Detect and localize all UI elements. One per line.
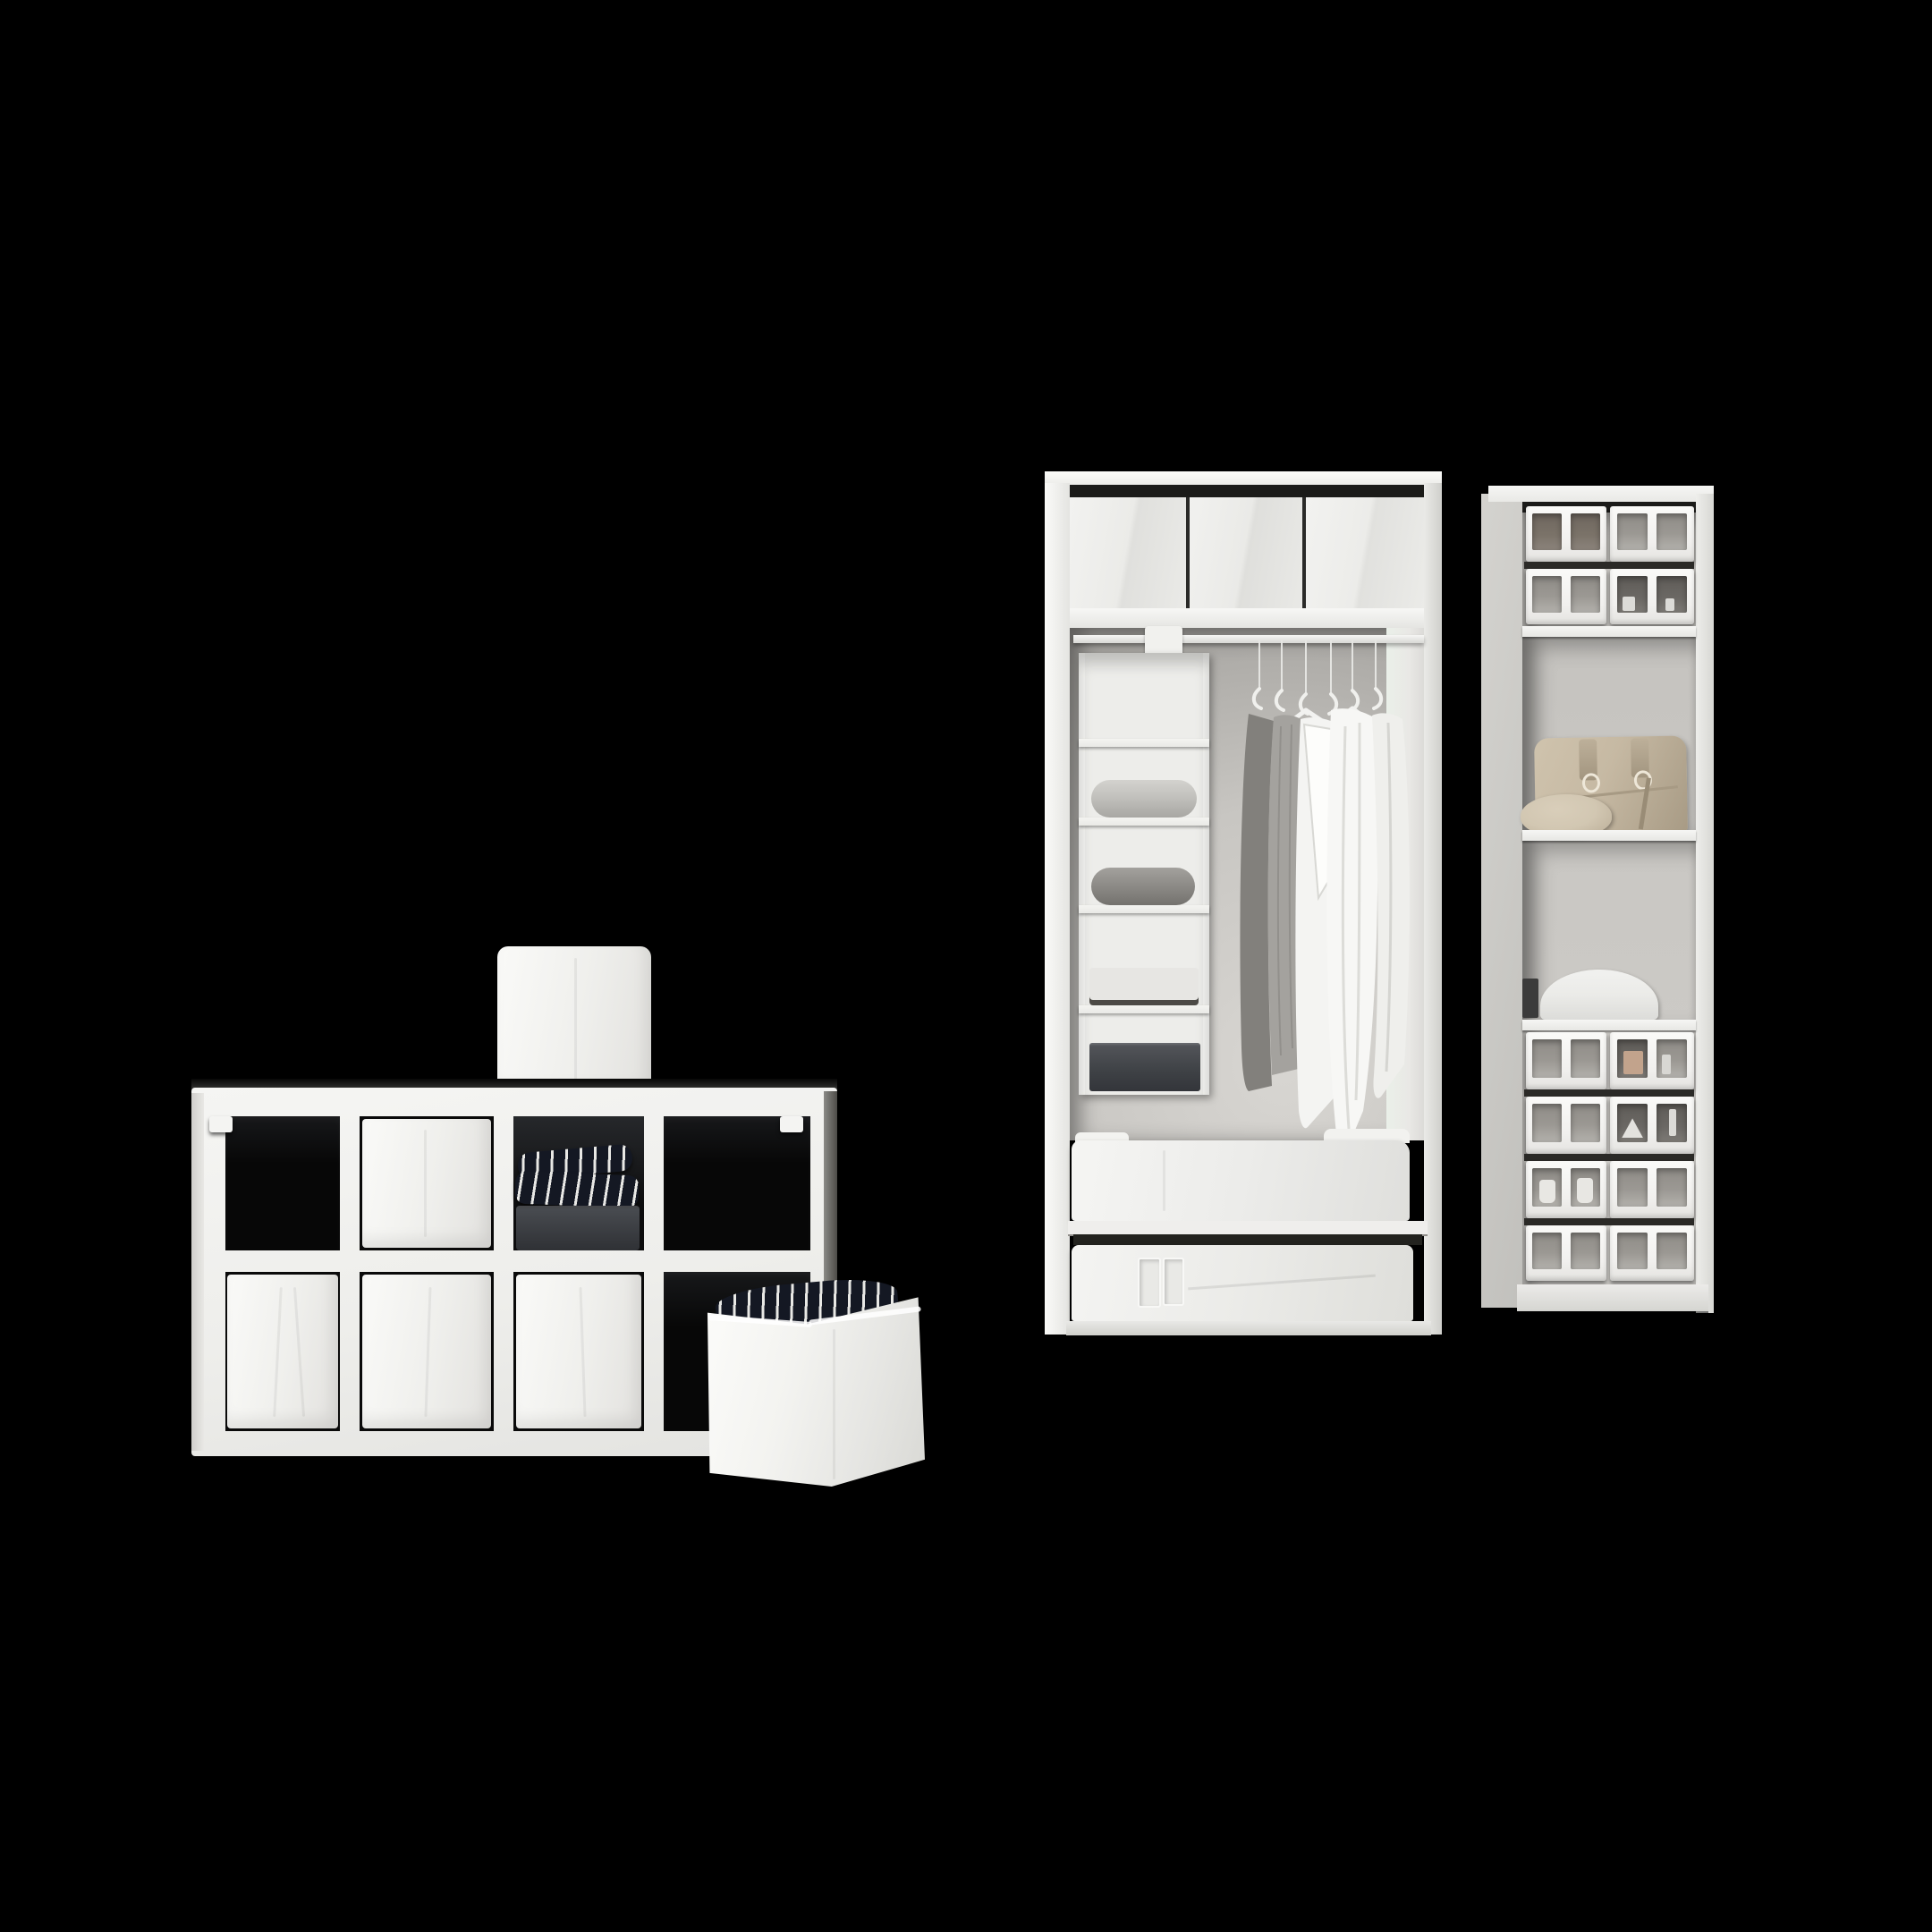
dark-folded-stack [516,1206,640,1250]
shelf-divider [1522,1020,1696,1030]
shoe-box-window [1657,1233,1688,1269]
stored-item-white [1623,597,1635,611]
folded-white-clothes [1089,968,1199,1005]
organizer-shelf [1079,1005,1209,1013]
shoe-box-window [1617,513,1648,550]
rolled-clothes-gray [1091,868,1195,905]
shoe-box-window [1571,513,1600,550]
shoe-box-window [1657,513,1688,550]
hanger-hooks [1254,689,1381,714]
shoe-box-window [1532,1104,1562,1141]
shoe-box [1526,1097,1606,1154]
fabric-drawer-box [362,1275,491,1428]
shoe-box [1526,506,1606,562]
stored-item-tan [1623,1051,1643,1074]
shoe-box-window [1532,513,1562,550]
shoe-box-window [1657,1104,1688,1141]
stored-item-white [1662,1055,1671,1074]
fabric-crease [424,1287,431,1417]
shelf-clip [780,1116,803,1132]
dark-folded-item [1522,979,1538,1018]
shoe-box [1526,1032,1606,1089]
shoe-box-window [1571,576,1600,613]
storage-case-upper [1072,1140,1410,1221]
wardrobe-top-band [1045,471,1442,486]
folded-dark-clothes [1089,1043,1200,1091]
overhead-cabinet [1070,497,1424,608]
shoe-box [1526,1161,1606,1218]
scene-background [0,0,1932,1932]
cube-cell [360,1116,494,1250]
case-shelf-gap [1073,1234,1422,1245]
shoe-box [1610,1097,1694,1154]
row-gap [1524,562,1694,569]
floor-storage-basket [698,1277,930,1492]
case-handle-loop [1138,1258,1161,1308]
shoe-box-window [1617,1168,1648,1206]
hanging-clothes [1215,628,1429,1165]
fabric-drawer-box [227,1275,338,1428]
shoe-box [1526,569,1606,624]
shoe-box-window [1657,1039,1688,1077]
shelf-left-side-face [191,1093,204,1451]
cabinet-door [1306,497,1424,608]
fabric-crease [1163,1150,1165,1211]
cabinet-door [1190,497,1302,608]
shoe-box [1610,1161,1694,1218]
cabinet-left-side-panel [1481,494,1524,1308]
cabinet-door [1070,497,1186,608]
shoe-box-window [1532,576,1562,613]
stored-cup-white [1577,1178,1593,1203]
fabric-crease [833,1329,835,1479]
organizer-shelf [1079,905,1209,913]
cabinet-base [1517,1284,1708,1311]
shelf-divider [1522,626,1696,637]
fabric-seam [1188,1275,1376,1291]
hanger-wires [1259,640,1376,696]
organizer-shelf [1079,739,1209,747]
shoe-box-window [1532,1168,1562,1206]
wardrobe-left-side [1045,483,1070,1335]
hanging-organizer [1079,653,1209,1095]
row-gap [1524,1154,1694,1161]
fabric-drawer-box [516,1275,641,1428]
shoe-box [1526,1225,1606,1281]
fabric-crease [574,958,577,1082]
cabinet-right-frame [1696,494,1714,1313]
row-gap [1524,1089,1694,1097]
shoe-box [1610,569,1694,624]
top-fabric-box [497,946,651,1095]
shoe-box-window [1571,1168,1600,1206]
stored-item-white [1665,598,1674,611]
shelf-divider [1522,830,1696,841]
cube-cell [513,1272,644,1431]
stored-cup-white [1539,1180,1555,1203]
row-gap [1524,1218,1694,1225]
shoe-box-window [1532,1039,1562,1077]
shoe-box [1610,1225,1694,1281]
wardrobe-base [1066,1321,1431,1335]
handbag-ring [1582,773,1600,792]
shoe-box-window [1657,1168,1688,1206]
fabric-crease [273,1287,283,1416]
shoe-box-window [1571,1039,1600,1077]
fabric-drawer-box [362,1119,491,1248]
shoe-box-window [1657,576,1688,613]
cube-cell-open [225,1116,340,1250]
cube-cell-open [664,1116,810,1250]
storage-case-lower [1072,1245,1413,1321]
fabric-crease [579,1287,586,1417]
shelf-clip [209,1116,233,1132]
shoe-box [1610,1032,1694,1089]
stored-item-white-wedge [1622,1118,1643,1138]
rolled-clothes-light [1091,780,1197,818]
shoe-box-window [1617,1039,1648,1077]
wardrobe-top-inset [1070,485,1424,497]
white-shirt-middle [1326,708,1377,1145]
shoe-box-window [1617,1233,1648,1269]
cube-cell [225,1272,340,1431]
case-handle-loop [1163,1258,1184,1306]
shoe-box-window [1532,1233,1562,1269]
fabric-crease [293,1287,305,1416]
shoe-box-window [1571,1233,1600,1269]
stored-item-white [1669,1109,1676,1136]
case-shelf [1068,1221,1428,1234]
cabinet-top-band [1488,486,1714,502]
cube-cell-clothes [513,1116,644,1250]
organizer-shelf [1079,818,1209,826]
cube-cell [360,1272,494,1431]
shoe-box-window [1571,1104,1600,1141]
shoe-box [1610,506,1694,562]
fabric-crease [424,1130,427,1238]
striped-folded-garment [514,1172,639,1208]
shoe-box-window [1617,576,1648,613]
shoe-box-window [1617,1104,1648,1141]
cabinet-bottom-shelf [1070,608,1424,628]
